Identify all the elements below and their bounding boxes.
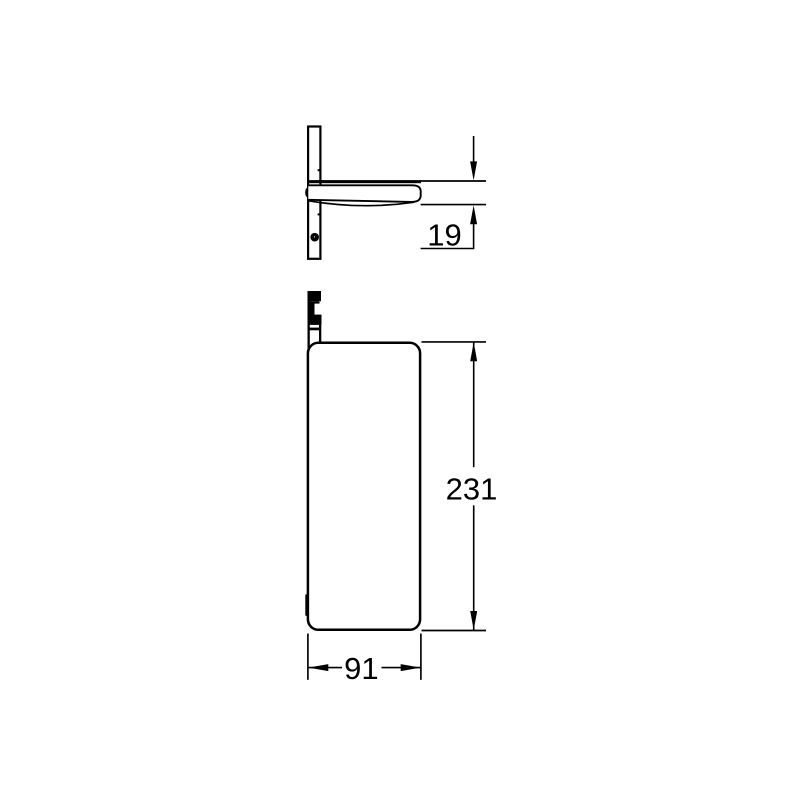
svg-text:19: 19: [427, 217, 461, 252]
svg-text:231: 231: [446, 471, 498, 506]
svg-text:91: 91: [344, 651, 378, 686]
